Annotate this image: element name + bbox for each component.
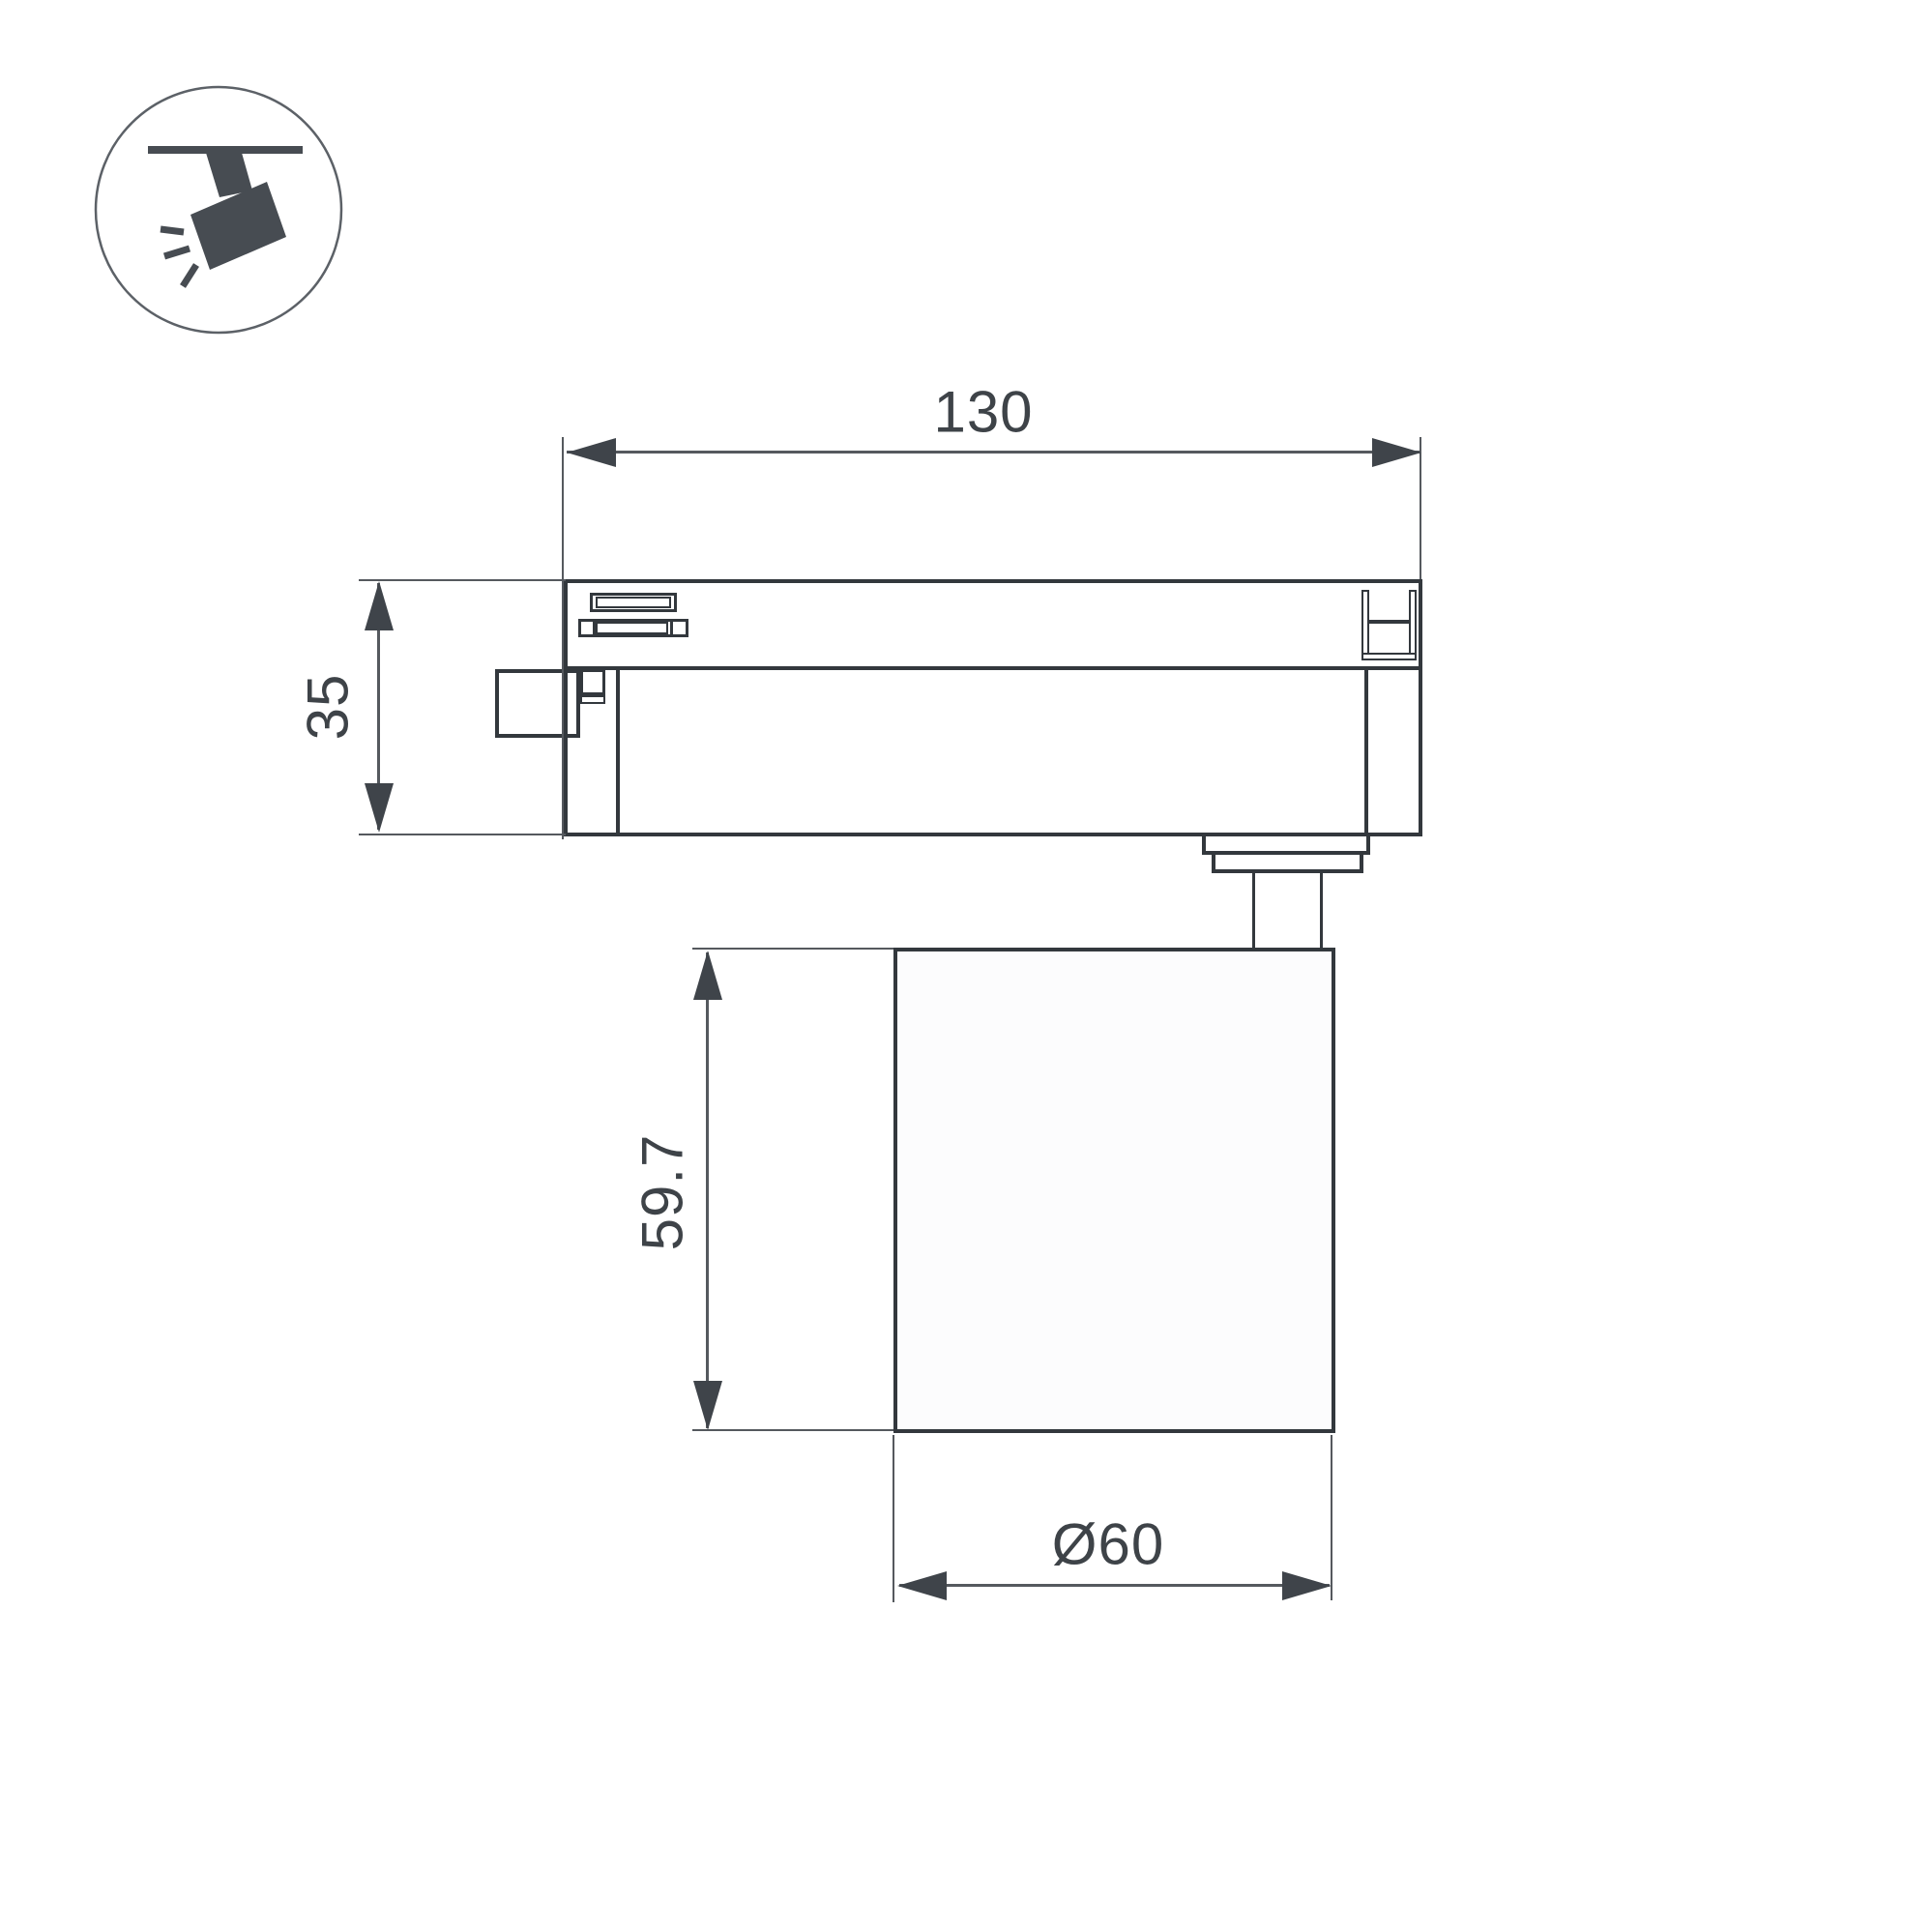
dim-130-line [567,451,1421,454]
dim-track-width-label: 130 [933,379,1033,446]
dim-60-line [899,1584,1330,1587]
dim-130-ext-left [562,437,564,839]
lock-lever-notch [580,669,605,695]
dim-60-ext-left [893,1435,894,1602]
contact-slider-top-inner [596,597,671,608]
adapter-mid-edge [566,666,1422,670]
contact-slider-bottom-inner [596,622,668,634]
dim-597-line [706,952,709,1428]
dim-597-ext-bottom [692,1429,893,1431]
light-ray [161,229,184,232]
dim-body-diameter-label: Ø60 [1052,1511,1164,1578]
adapter-right-edge [1419,579,1422,836]
end-bracket-bottom [1361,653,1417,660]
end-bracket-crossbar [1368,620,1410,624]
end-bracket-left-wall [1361,590,1369,660]
technical-drawing-page: 130 35 59.7 Ø60 [0,0,1932,1932]
lock-lever-notch-bar [580,695,605,704]
dim-35-ext-bottom [359,834,566,835]
adapter-top-edge [566,579,1422,583]
lock-lever [495,669,580,738]
dim-35-arrow-top [365,581,394,630]
dim-597-arrow-top [693,951,722,1000]
adapter-inner-left-edge [616,668,620,834]
dim-60-arrow-left [897,1571,947,1600]
dim-130-arrow-left [567,438,616,467]
dim-597-arrow-bottom [693,1381,722,1430]
end-bracket-right-wall [1409,590,1417,660]
swivel-flange-upper [1202,833,1370,855]
dim-597-ext-top [692,948,893,950]
dim-body-height-label: 59.7 [629,1134,696,1251]
slider-divider-right [670,619,673,637]
dim-130-arrow-right [1372,438,1421,467]
lamp-body [893,948,1335,1433]
dim-60-arrow-right [1282,1571,1332,1600]
track-bar [148,146,303,154]
track-spotlight-icon [93,84,344,336]
dim-35-arrow-bottom [365,783,394,833]
swivel-stem [1252,871,1323,951]
spotlight-icon-badge [93,84,344,336]
adapter-inner-right-edge [1364,668,1368,834]
dim-track-height-label: 35 [295,674,362,741]
